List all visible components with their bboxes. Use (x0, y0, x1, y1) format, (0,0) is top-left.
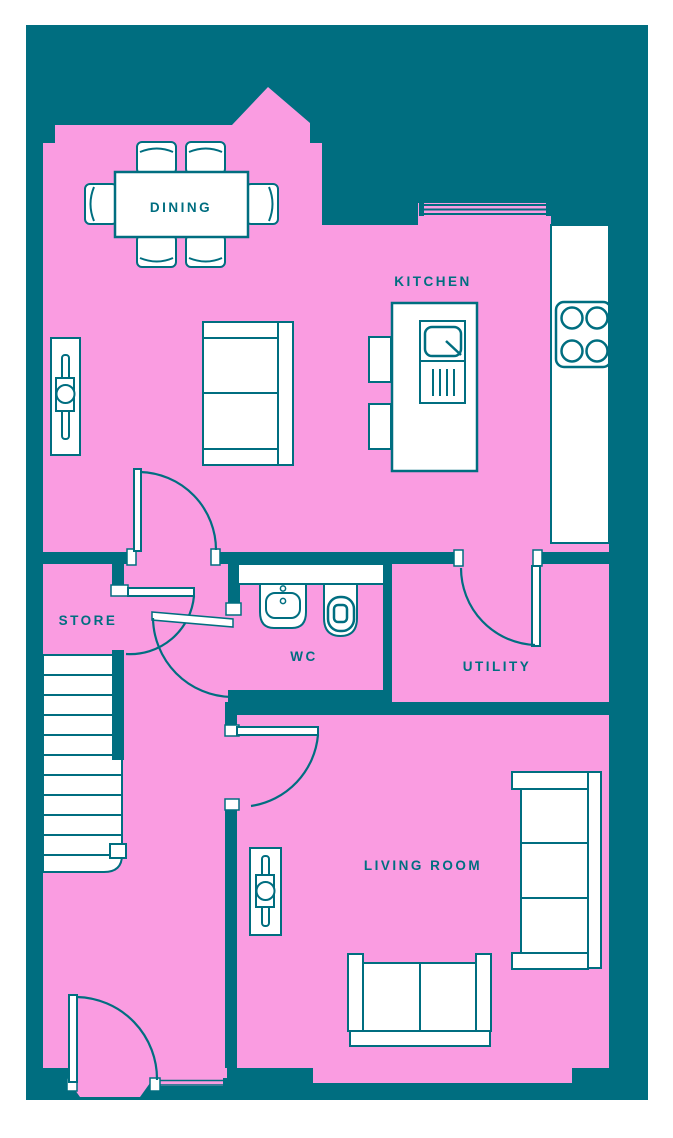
dining-chair (186, 235, 225, 267)
dining-chair (85, 184, 117, 224)
sofa-two-seat (203, 322, 293, 465)
radiator-icon (51, 338, 80, 455)
vanity-counter (238, 564, 384, 584)
radiator-icon (250, 848, 281, 935)
dining-chair (137, 235, 176, 267)
basin-icon (260, 580, 306, 628)
room-label-living-room: LIVING ROOM (364, 858, 482, 873)
sofa-two-seat-bottom (348, 954, 491, 1046)
dining-chair (137, 142, 176, 174)
room-label-kitchen: KITCHEN (394, 274, 472, 289)
floorplan-page: DINING KITCHEN STORE WC UTILITY LIVING R… (0, 0, 673, 1138)
stair-newel-post (110, 844, 126, 858)
room-label-store: STORE (59, 613, 118, 628)
room-label-dining: DINING (150, 200, 212, 215)
window-kitchen-icon (419, 202, 551, 216)
sofa-three-seat (512, 772, 601, 969)
staircase (43, 650, 126, 872)
bar-stool (369, 404, 391, 449)
kitchen-counter (551, 225, 611, 543)
room-label-utility: UTILITY (463, 659, 532, 674)
toilet-icon (324, 580, 357, 636)
dining-chair (186, 142, 225, 174)
dining-chair (246, 184, 278, 224)
floorplan-svg: DINING KITCHEN STORE WC UTILITY LIVING R… (0, 0, 673, 1138)
room-label-wc: WC (290, 649, 318, 664)
porch-step (70, 1083, 150, 1097)
bar-stool (369, 337, 391, 382)
